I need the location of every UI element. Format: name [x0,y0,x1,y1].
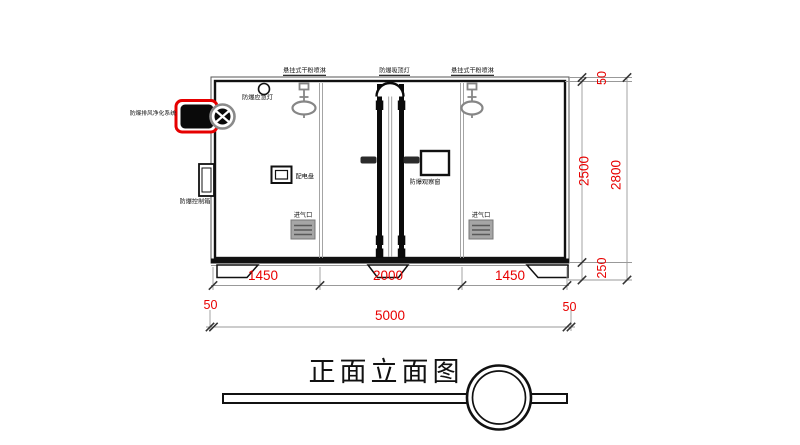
air-inlet-right-label: 进气口 [472,211,491,219]
exhaust-system-label: 防爆排风净化系统 [130,109,177,117]
dim-2800: 2800 [609,160,624,190]
control-box: 防爆控制箱 [180,164,214,206]
observation-window-label: 防爆观察窗 [410,178,441,186]
air-inlet-right: 进气口 [469,211,493,239]
dim-1450-right: 1450 [495,268,525,283]
sprinkler-left-label: 悬挂式干粉喷淋 [283,67,326,75]
control-box-label: 防爆控制箱 [180,198,211,206]
dim-2500: 2500 [577,156,592,186]
dimension-heights: 50 2500 250 2800 [565,71,632,284]
air-inlet-left: 进气口 [291,211,315,239]
dim-5000: 5000 [375,308,405,323]
elevation-drawing: 防爆应急灯 防爆排风净化系统 防爆控制箱 配电盘 防爆观察窗 进气口 [0,0,800,445]
emergency-light-icon [259,84,270,95]
exhaust-unit-body [181,105,214,129]
sprinkler-right-label: 悬挂式干粉喷淋 [451,67,494,75]
title-circle-outer [467,366,531,430]
door-handle-right [404,157,420,164]
fan-icon [211,105,235,129]
dim-2000-center: 2000 [373,268,403,283]
title-block: 正面立面图 [223,357,567,430]
container-box [211,77,569,266]
drawing-title: 正面立面图 [309,357,464,387]
dim-250: 250 [595,258,609,279]
emergency-light-label: 防爆应急灯 [242,94,273,102]
dim-50-right: 50 [563,300,577,314]
dim-50-top: 50 [595,71,609,85]
ceiling-light-label: 防爆吸顶灯 [379,67,409,75]
air-inlet-left-label: 进气口 [294,211,313,219]
dim-50-left: 50 [204,298,218,312]
power-panel-label: 配电盘 [296,173,315,181]
container-outer-frame [211,77,569,263]
door-handle-left [361,157,377,164]
roof-callouts: 悬挂式干粉喷淋 防爆吸顶灯 悬挂式干粉喷淋 [283,67,494,76]
dimension-width-segments: 1450 2000 1450 [209,267,571,290]
dim-1450-left: 1450 [248,268,278,283]
foot-right [527,265,568,278]
exhaust-purification-system: 防爆排风净化系统 [130,101,235,133]
dimension-overall-width: 50 5000 50 [204,298,577,331]
